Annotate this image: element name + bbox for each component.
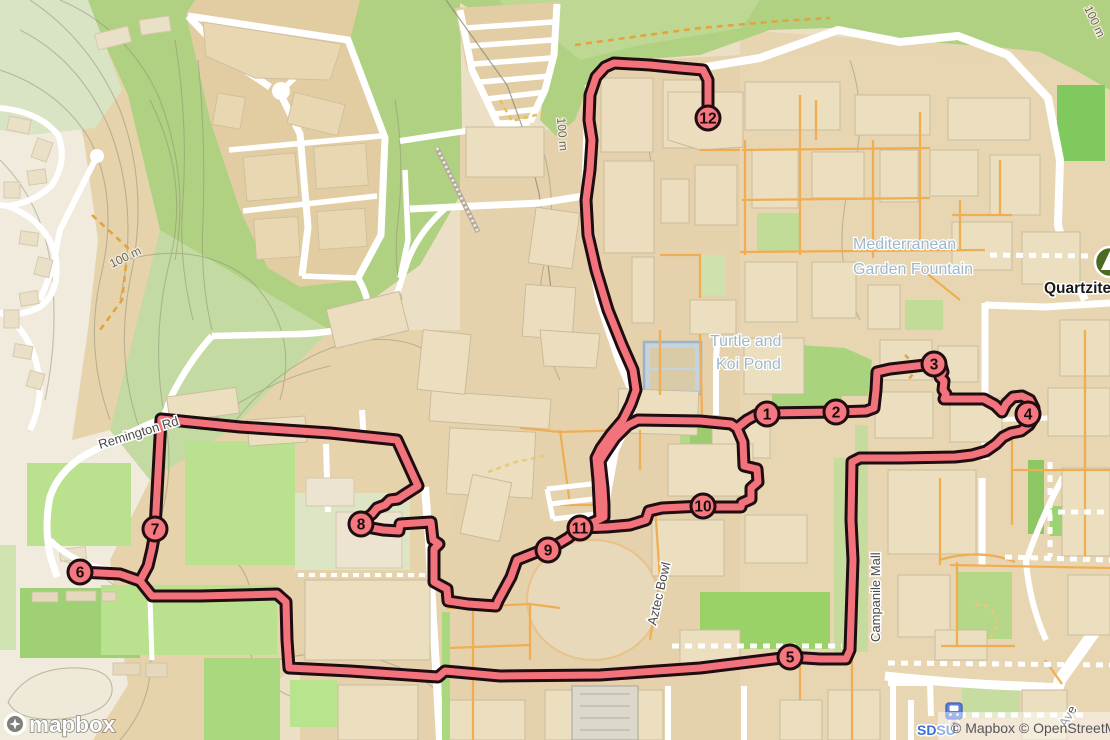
svg-text:6: 6 [76,565,85,582]
svg-text:Koi Pond: Koi Pond [716,356,781,373]
svg-text:11: 11 [572,521,589,538]
svg-text:12: 12 [699,111,716,128]
svg-text:100 m: 100 m [554,117,571,151]
svg-text:Campanile Mall: Campanile Mall [868,552,883,642]
svg-text:2: 2 [832,405,841,422]
svg-text:10: 10 [694,499,711,516]
svg-text:5: 5 [786,650,795,667]
svg-text:8: 8 [357,517,366,534]
svg-text:3: 3 [930,357,939,374]
svg-text:7: 7 [151,522,160,539]
svg-text:© Mapbox © OpenStreetMap: © Mapbox © OpenStreetMap [951,720,1110,736]
svg-text:9: 9 [544,543,553,560]
svg-text:Turtle and: Turtle and [710,333,781,350]
svg-text:Mediterranean: Mediterranean [853,236,956,253]
svg-text:Quartzite: Quartzite [1044,280,1110,297]
svg-text:4: 4 [1024,407,1033,424]
svg-text:1: 1 [763,407,772,424]
svg-text:mapbox: mapbox [29,712,116,737]
svg-text:Garden Fountain: Garden Fountain [853,261,973,278]
